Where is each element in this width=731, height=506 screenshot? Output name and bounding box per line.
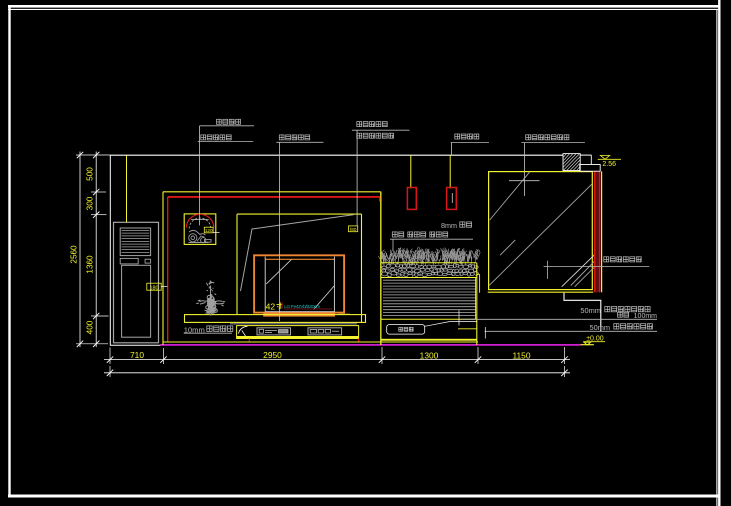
svg-text:50mm: 50mm bbox=[590, 323, 611, 332]
svg-text:300: 300 bbox=[86, 196, 95, 210]
svg-text:1150: 1150 bbox=[512, 351, 530, 361]
svg-text:120: 120 bbox=[205, 228, 213, 233]
svg-text:400: 400 bbox=[86, 320, 95, 334]
svg-text:2560: 2560 bbox=[70, 245, 79, 264]
svg-text:42: 42 bbox=[266, 301, 276, 311]
svg-text:710: 710 bbox=[130, 350, 144, 360]
svg-text:100mm: 100mm bbox=[634, 313, 658, 320]
svg-text:2.56: 2.56 bbox=[602, 161, 616, 168]
svg-text:50mm: 50mm bbox=[580, 306, 601, 315]
svg-text:1300: 1300 bbox=[420, 351, 439, 361]
svg-text:2950: 2950 bbox=[263, 350, 282, 360]
svg-text:(80: (80 bbox=[350, 227, 357, 232]
svg-text:LG Pe42Vb/B2Dcm: LG Pe42Vb/B2Dcm bbox=[284, 304, 320, 309]
svg-text:180: 180 bbox=[150, 285, 159, 291]
svg-text:8mm: 8mm bbox=[441, 221, 457, 230]
svg-text:500: 500 bbox=[86, 167, 95, 181]
svg-text:1360: 1360 bbox=[86, 255, 95, 274]
